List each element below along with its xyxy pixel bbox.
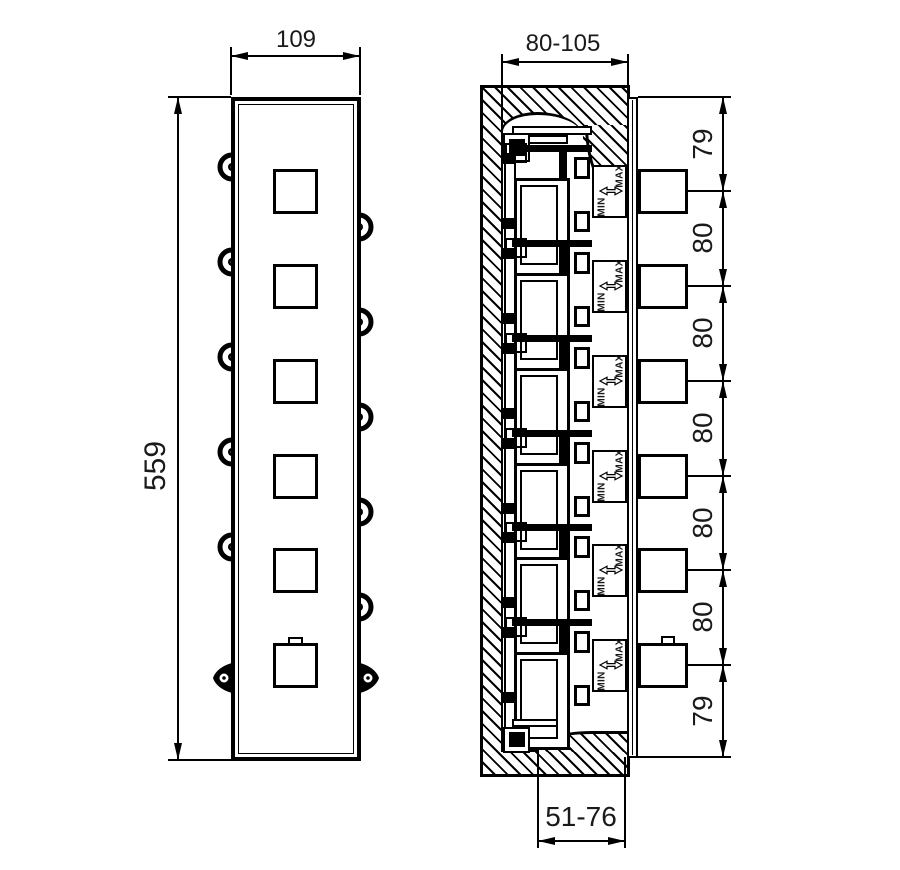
handle-square-5: [273, 548, 318, 593]
chain-arrow-5a: [719, 553, 727, 570]
chain-arrow-4b: [719, 476, 727, 493]
mounting-lug-left-2: [215, 246, 232, 278]
mounting-lug-left-1: [215, 151, 232, 183]
mounting-lug-point-left: [211, 662, 232, 694]
unit3-cartridge-lower: [574, 401, 590, 422]
unit6-cartridge-lower: [574, 685, 590, 706]
dim-559-line: [177, 97, 179, 760]
unit3-column: [559, 342, 567, 370]
chain-ext-bottom: [638, 756, 731, 758]
dim-depth-ext-left: [501, 54, 503, 196]
dim-109-line: [231, 55, 360, 57]
chain-label-2: 80: [687, 222, 719, 253]
mounting-lug-right-5: [359, 591, 376, 623]
unit5-max-label: MAX: [615, 543, 626, 566]
unit4-stub-top: [503, 438, 516, 449]
chain-label-4: 80: [687, 412, 719, 443]
chain-arrow-2b: [719, 286, 727, 303]
handle-square-2: [273, 264, 318, 309]
unit3-max-label: MAX: [615, 354, 626, 377]
chain-arrow-6a: [719, 648, 727, 665]
chain-label-3: 80: [687, 317, 719, 348]
unit5-min-label: MIN: [597, 576, 608, 595]
chain-arrow-1b: [719, 191, 727, 208]
unit6-max-label: MAX: [615, 638, 626, 661]
knob-6: [638, 643, 688, 688]
unit2-cartridge-lower: [574, 306, 590, 327]
technical-drawing-valve-installation: 109 559 MAX MIN MAX MIN: [0, 0, 900, 870]
chain-arrow-6b: [719, 665, 727, 682]
bottom-bracket-screw: [509, 732, 525, 747]
mounting-lug-right-1: [359, 211, 376, 243]
dim-109-arrow-left: [231, 52, 248, 60]
unit3-cap-band: [512, 335, 592, 342]
dim-109-arrow-right: [343, 52, 360, 60]
unit2-cap-band: [512, 240, 592, 247]
handle-square-6: [273, 643, 318, 688]
unit5-column: [559, 531, 567, 559]
unit2-max-label: MAX: [615, 259, 626, 282]
unit6-cartridge-upper: [574, 631, 590, 653]
dim-depth-label: 80-105: [526, 30, 601, 58]
unit4-cartridge-lower: [574, 496, 590, 517]
mounting-lug-left-5: [215, 531, 232, 563]
unit2-stub-top: [503, 248, 516, 259]
chain-arrow-5b: [719, 570, 727, 587]
unit4-cap-band: [512, 430, 592, 437]
finish-plate-inner-line: [632, 100, 634, 755]
unit1-column: [559, 152, 567, 180]
unit2-cartridge-upper: [574, 252, 590, 274]
knob-1: [638, 169, 688, 214]
unit4-column: [559, 437, 567, 465]
unit1-stub-top: [503, 153, 516, 164]
unit1-cartridge-upper: [574, 157, 590, 179]
dim-559-label: 559: [139, 441, 173, 491]
unit5-cap-band: [512, 524, 592, 531]
unit1-max-label: MAX: [615, 164, 626, 187]
dim-embed-ext-left: [537, 748, 539, 848]
unit1-cartridge-lower: [574, 211, 590, 232]
dim-depth-arrow-left: [502, 58, 519, 66]
unit2-min-label: MIN: [597, 292, 608, 311]
unit6-cap-band: [512, 619, 592, 626]
unit1-min-label: MIN: [597, 197, 608, 216]
mounting-lug-right-3: [359, 401, 376, 433]
chain-label-5: 80: [687, 507, 719, 538]
mounting-lug-right-4: [359, 496, 376, 528]
dim-559-arrow-top: [174, 97, 182, 114]
dim-depth-line: [502, 61, 628, 63]
unit3-min-label: MIN: [597, 387, 608, 406]
unit4-cartridge-upper: [574, 442, 590, 464]
unit6-min-label: MIN: [597, 671, 608, 690]
chain-label-1: 79: [687, 128, 719, 159]
unit5-stub-top: [503, 532, 516, 543]
dim-109-label: 109: [276, 26, 316, 54]
chain-arrow-4a: [719, 459, 727, 476]
chain-label-7: 79: [687, 695, 719, 726]
chain-arrow-3a: [719, 364, 727, 381]
knob-2: [638, 264, 688, 309]
unit3-cartridge-upper: [574, 347, 590, 369]
chain-arrow-3b: [719, 381, 727, 398]
dim-embed-arrow-left: [538, 837, 555, 845]
chain-ext-top: [638, 96, 731, 98]
unit6-stub-top: [503, 627, 516, 638]
dim-559-arrow-bottom: [174, 743, 182, 760]
mounting-lug-left-3: [215, 341, 232, 373]
mounting-lug-right-2: [359, 306, 376, 338]
chain-arrow-2a: [719, 269, 727, 286]
chain-arrow-top: [719, 97, 727, 114]
unit5-cartridge-lower: [574, 590, 590, 611]
dim-embed-ext-right: [624, 757, 626, 848]
unit5-cartridge-upper: [574, 536, 590, 558]
unit1-cap-band: [512, 145, 592, 152]
unit4-min-label: MIN: [597, 482, 608, 501]
knob-4: [638, 454, 688, 499]
mounting-lug-point-right: [360, 662, 381, 694]
dim-embed-arrow-right: [608, 837, 625, 845]
handle-square-3: [273, 359, 318, 404]
bottom-cap-strip: [512, 719, 558, 727]
mounting-lug-left-4: [215, 436, 232, 468]
unit6-column: [559, 626, 567, 654]
knob-5: [638, 548, 688, 593]
unit2-column: [559, 247, 567, 275]
chain-label-6: 80: [687, 601, 719, 632]
dim-depth-arrow-right: [611, 58, 628, 66]
chain-arrow-1a: [719, 174, 727, 191]
unit4-max-label: MAX: [615, 449, 626, 472]
handle-square-4: [273, 454, 318, 499]
dim-embed-label: 51-76: [545, 801, 617, 833]
knob-3: [638, 359, 688, 404]
handle-square-1: [273, 169, 318, 214]
unit3-stub-top: [503, 343, 516, 354]
chain-arrow-bottom: [719, 740, 727, 757]
